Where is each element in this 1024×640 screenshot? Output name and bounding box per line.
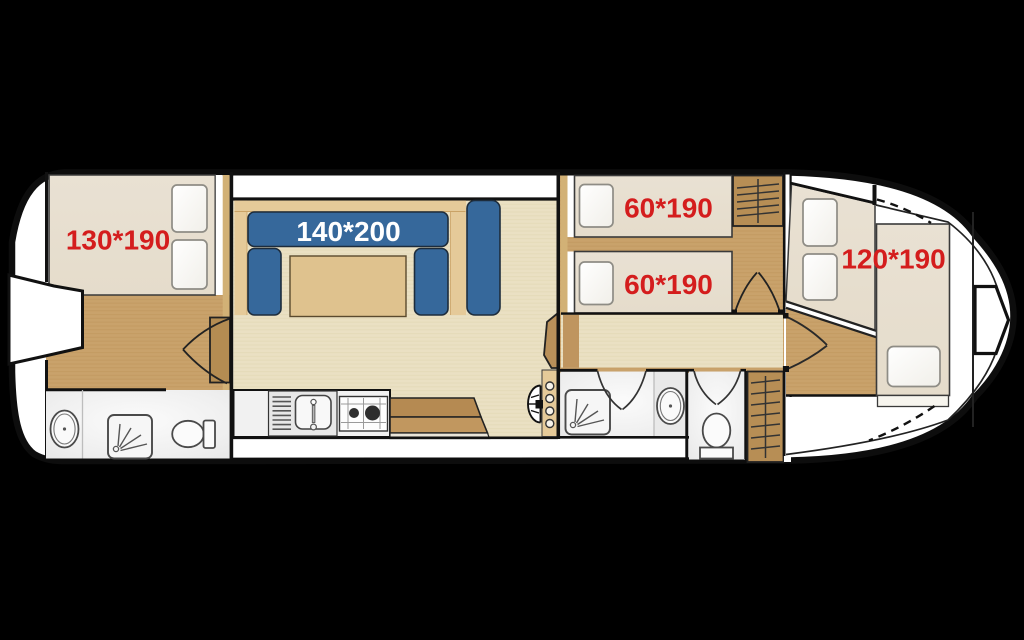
svg-text:130*190: 130*190 (66, 225, 170, 256)
svg-text:120*190: 120*190 (841, 244, 945, 275)
svg-text:60*190: 60*190 (624, 269, 713, 300)
svg-text:140*200: 140*200 (296, 216, 400, 247)
svg-text:60*190: 60*190 (624, 193, 713, 224)
